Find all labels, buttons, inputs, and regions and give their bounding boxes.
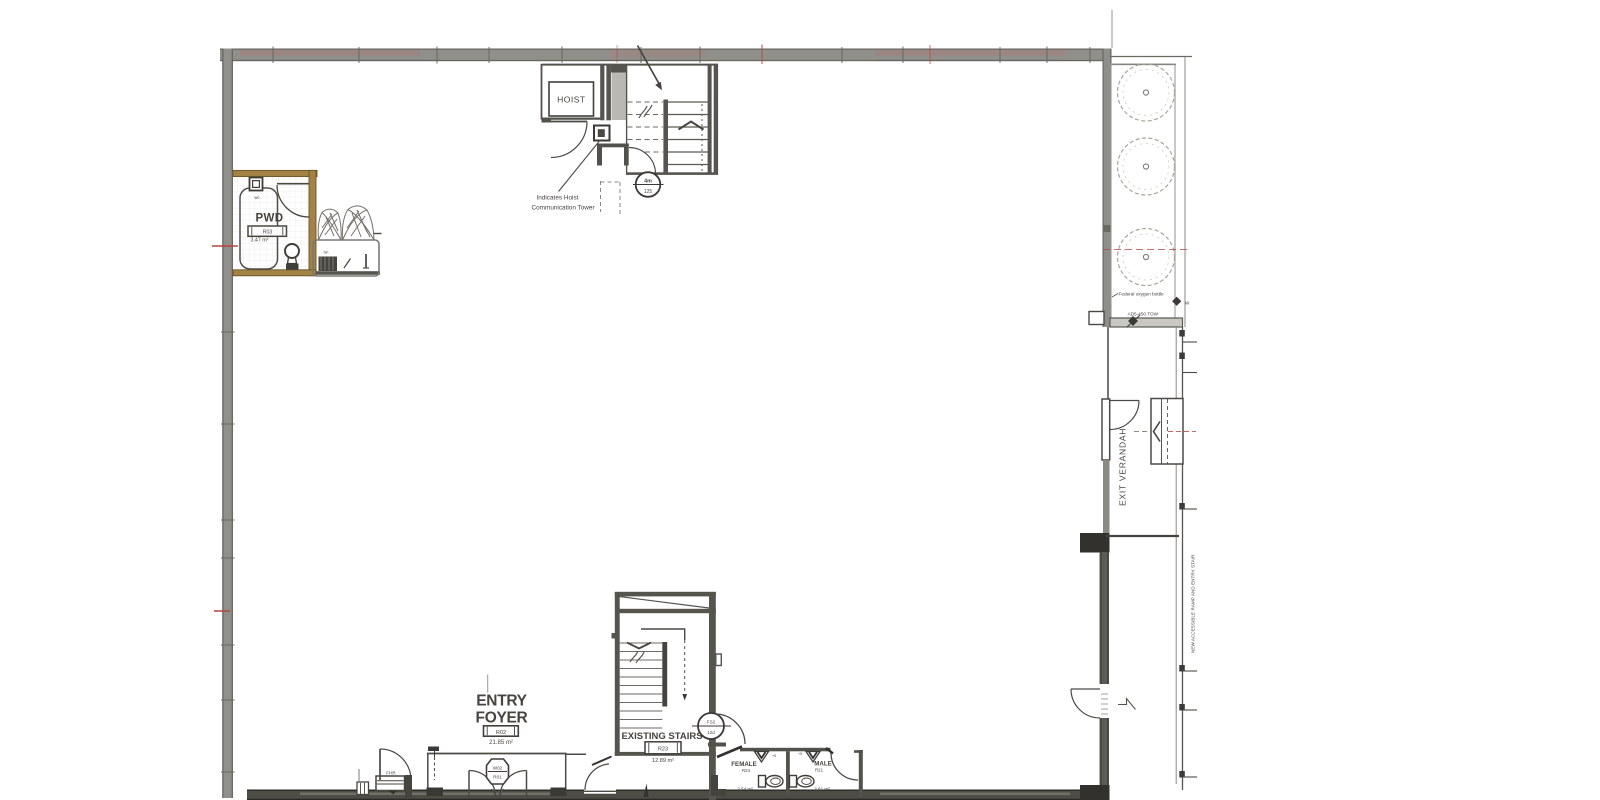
svg-text:21.85 m²: 21.85 m² bbox=[489, 740, 513, 746]
svg-text:Communication Tower: Communication Tower bbox=[532, 205, 596, 212]
svg-text:FOYER: FOYER bbox=[476, 710, 528, 727]
svg-text:4m: 4m bbox=[644, 179, 652, 185]
svg-text:R03: R03 bbox=[263, 230, 273, 236]
svg-text:W02: W02 bbox=[493, 766, 503, 771]
svg-text:2.54 m²: 2.54 m² bbox=[737, 787, 753, 792]
svg-text:EXISTING STAIRS: EXISTING STAIRS bbox=[621, 731, 702, 742]
svg-text:2.61 m²: 2.61 m² bbox=[814, 787, 830, 792]
svg-text:ENTRY: ENTRY bbox=[476, 693, 527, 710]
svg-text:+5: +5 bbox=[798, 752, 802, 756]
svg-text:HOIST: HOIST bbox=[557, 95, 586, 105]
svg-text:12.89 m²: 12.89 m² bbox=[652, 758, 674, 764]
svg-text:EXIT VERANDAH: EXIT VERANDAH bbox=[1118, 428, 1128, 506]
svg-text:12d: 12d bbox=[707, 730, 715, 735]
svg-text:AD5-450 TOW: AD5-450 TOW bbox=[1128, 312, 1159, 317]
svg-text:3.47 m²: 3.47 m² bbox=[251, 238, 269, 244]
svg-text:R02: R02 bbox=[496, 730, 506, 736]
svg-text:PWD: PWD bbox=[255, 213, 283, 225]
svg-text:R23: R23 bbox=[658, 747, 668, 753]
svg-text:R21: R21 bbox=[815, 768, 824, 773]
svg-text:NEW ACCESSIBLE RAMP AND ENTRY: NEW ACCESSIBLE RAMP AND ENTRY STAIR bbox=[1191, 554, 1196, 653]
svg-text:Federal oxygen bottle: Federal oxygen bottle bbox=[1119, 292, 1164, 297]
svg-text:FEMALE: FEMALE bbox=[731, 761, 756, 768]
svg-text:bin: bin bbox=[324, 251, 329, 255]
svg-text:FHR: FHR bbox=[386, 771, 396, 776]
svg-text:MALE: MALE bbox=[814, 761, 832, 768]
svg-text:W: W bbox=[1185, 301, 1190, 306]
svg-text:R01: R01 bbox=[493, 775, 502, 780]
svg-text:R24: R24 bbox=[742, 768, 751, 773]
svg-text:125: 125 bbox=[644, 189, 653, 195]
svg-text:wc: wc bbox=[254, 195, 259, 200]
svg-text:+5: +5 bbox=[772, 754, 776, 758]
svg-text:FS2: FS2 bbox=[707, 720, 716, 725]
svg-text:Indicates Hoist: Indicates Hoist bbox=[537, 195, 579, 202]
